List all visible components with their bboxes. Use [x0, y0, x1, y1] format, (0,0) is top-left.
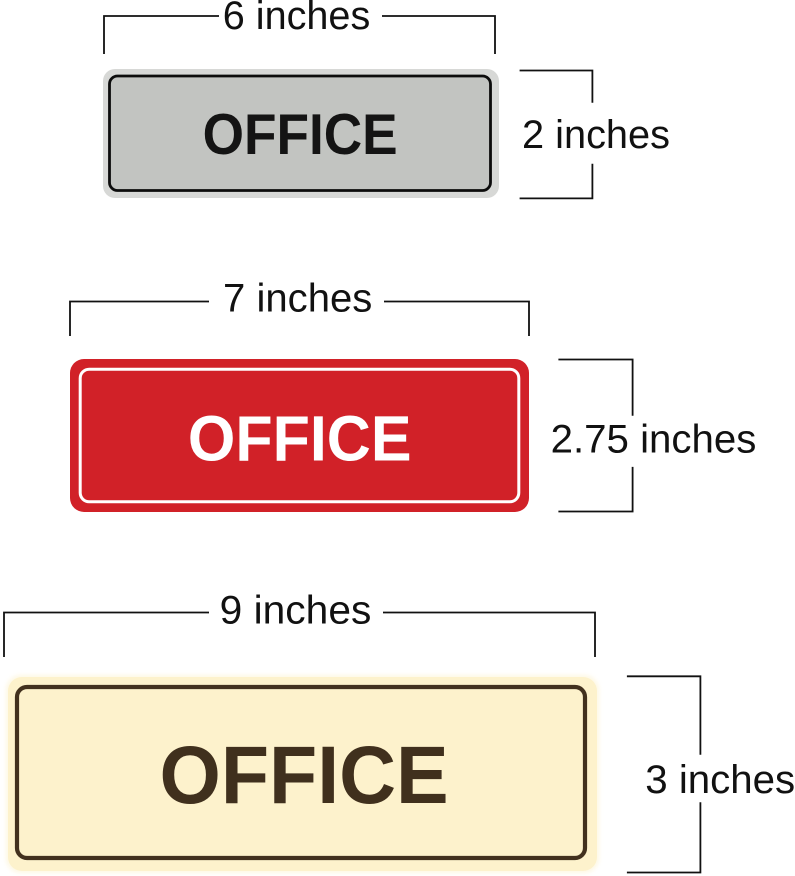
svg-text:9 inches: 9 inches: [220, 589, 372, 633]
svg-text:6 inches: 6 inches: [223, 0, 371, 38]
svg-text:OFFICE: OFFICE: [160, 730, 449, 820]
svg-text:OFFICE: OFFICE: [188, 403, 412, 475]
svg-text:2.75 inches: 2.75 inches: [551, 418, 757, 462]
svg-text:OFFICE: OFFICE: [203, 102, 398, 166]
svg-text:3 inches: 3 inches: [645, 758, 795, 802]
svg-text:2 inches: 2 inches: [522, 113, 670, 157]
svg-text:7 inches: 7 inches: [223, 277, 372, 321]
